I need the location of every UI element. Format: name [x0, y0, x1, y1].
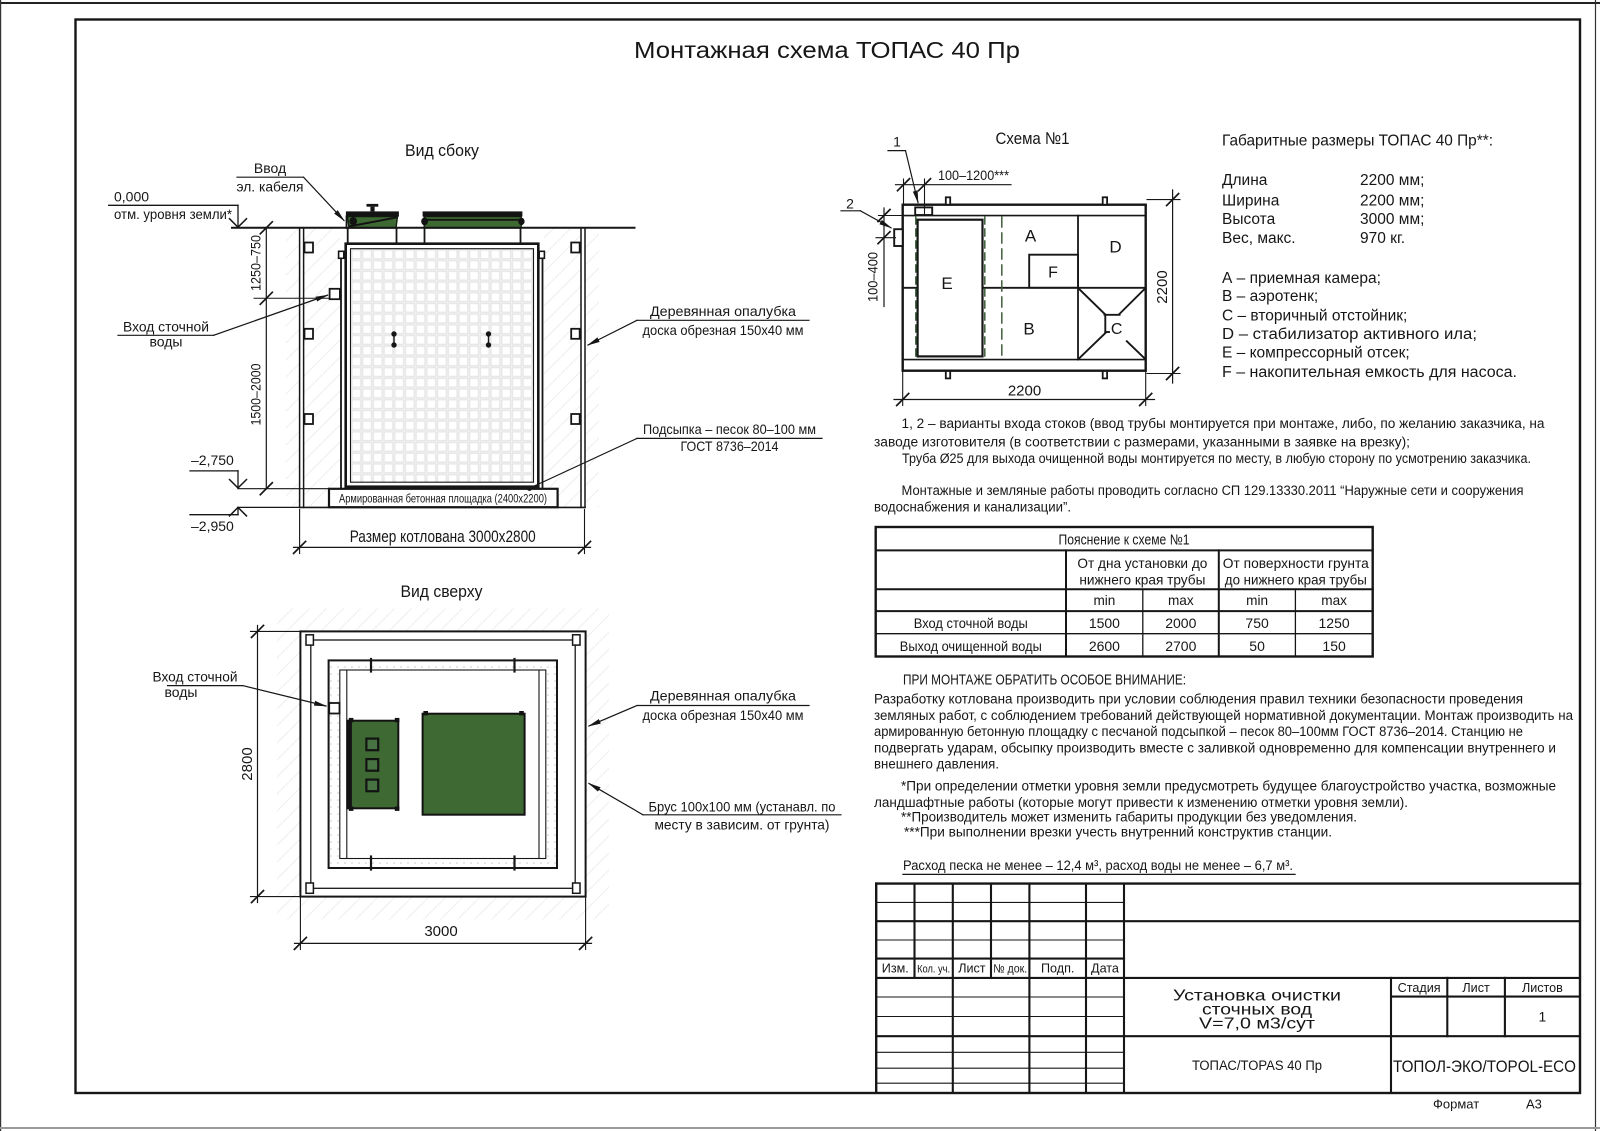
svg-text:доска обрезная 150х40 мм: доска обрезная 150х40 мм	[643, 322, 804, 338]
svg-text:Высота: Высота	[1222, 211, 1276, 228]
svg-text:–2,750: –2,750	[191, 452, 234, 468]
svg-text:C: C	[1111, 321, 1123, 338]
svg-text:От дна установки до: От дна установки до	[1077, 556, 1207, 571]
svg-text:Вход сточной воды: Вход сточной воды	[914, 615, 1028, 631]
svg-text:заводе изготовителя (в соответ: заводе изготовителя (в соответствии с ра…	[874, 435, 1410, 451]
svg-text:750: 750	[1245, 615, 1269, 631]
svg-text:ТОПОЛ-ЭКО/TOPOL-ECO: ТОПОЛ-ЭКО/TOPOL-ECO	[1393, 1057, 1576, 1076]
svg-text:Труба Ø25 для выхода очищенной: Труба Ø25 для выхода очищенной воды монт…	[902, 451, 1531, 467]
svg-text:От поверхности грунта: От поверхности грунта	[1223, 556, 1369, 571]
svg-text:970 кг.: 970 кг.	[1360, 230, 1405, 247]
svg-text:доска обрезная 150х40 мм: доска обрезная 150х40 мм	[643, 707, 804, 723]
svg-text:земляных работ, с соблюдением: земляных работ, с соблюдением требований…	[874, 708, 1573, 724]
svg-text:ПРИ МОНТАЖЕ ОБРАТИТЬ ОСОБОЕ ВН: ПРИ МОНТАЖЕ ОБРАТИТЬ ОСОБОЕ ВНИМАНИЕ:	[903, 673, 1186, 689]
svg-text:max: max	[1321, 593, 1347, 608]
svg-text:Разработку котлована производи: Разработку котлована производить при усл…	[874, 692, 1523, 708]
svg-text:Лист: Лист	[1462, 981, 1490, 995]
svg-text:min: min	[1246, 593, 1268, 608]
svg-text:№ док.: № док.	[993, 962, 1027, 976]
svg-text:2200: 2200	[1008, 382, 1041, 399]
svg-text:армированную бетонную площадку: армированную бетонную площадку с песчано…	[874, 724, 1523, 740]
svg-text:отм. уровня земли*: отм. уровня земли*	[114, 207, 232, 222]
svg-text:ТОПАС/TOPAS 40 Пр: ТОПАС/TOPAS 40 Пр	[1192, 1058, 1322, 1074]
svg-text:–2,950: –2,950	[191, 518, 234, 534]
svg-text:F – накопительная емкость для: F – накопительная емкость для насоса.	[1222, 364, 1517, 381]
svg-text:Расход песка не менее – 12,4 м: Расход песка не менее – 12,4 м³, расход …	[903, 858, 1293, 874]
svg-text:А3: А3	[1526, 1097, 1542, 1112]
svg-text:Монтажные и земляные работы пр: Монтажные и земляные работы проводить со…	[902, 483, 1524, 499]
svg-text:2200: 2200	[1154, 270, 1171, 303]
svg-text:подвергать ударам, обсыпку про: подвергать ударам, обсыпку производить в…	[874, 740, 1556, 756]
svg-text:Формат: Формат	[1433, 1097, 1479, 1112]
svg-text:0,000: 0,000	[114, 189, 149, 205]
svg-text:ГОСТ 8736–2014: ГОСТ 8736–2014	[681, 438, 779, 454]
svg-text:B: B	[1023, 320, 1034, 339]
svg-text:Вес, макс.: Вес, макс.	[1222, 230, 1296, 247]
svg-text:A: A	[1025, 227, 1037, 246]
svg-text:3000: 3000	[424, 923, 457, 940]
svg-text:***При выполнении врезки учест: ***При выполнении врезки учесть внутренн…	[904, 824, 1332, 840]
svg-text:E: E	[941, 274, 952, 293]
svg-text:Схема №1: Схема №1	[996, 129, 1070, 148]
svg-text:до нижнего края трубы: до нижнего края трубы	[1225, 573, 1367, 588]
svg-text:100–400: 100–400	[865, 252, 881, 302]
svg-text:С – вторичный отстойник;: С – вторичный отстойник;	[1222, 308, 1407, 325]
svg-text:2: 2	[846, 195, 854, 211]
svg-text:3000 мм;: 3000 мм;	[1360, 211, 1424, 228]
svg-text:2600: 2600	[1089, 638, 1120, 654]
svg-text:150: 150	[1322, 638, 1346, 654]
svg-text:Вид сбоку: Вид сбоку	[405, 141, 479, 160]
svg-text:Брус 100х100 мм (устанавл. по: Брус 100х100 мм (устанавл. по	[649, 799, 836, 815]
svg-text:Изм.: Изм.	[882, 962, 909, 976]
svg-text:Ширина: Ширина	[1222, 193, 1280, 210]
svg-text:V=7,0 м3/сут: V=7,0 м3/сут	[1199, 1016, 1315, 1033]
svg-text:Вид сверху: Вид сверху	[401, 582, 483, 601]
svg-text:эл. кабеля: эл. кабеля	[237, 179, 304, 195]
svg-text:2800: 2800	[239, 747, 256, 780]
svg-text:Армированная бетонная площадка: Армированная бетонная площадка (2400х220…	[339, 491, 547, 505]
svg-text:Деревянная опалубка: Деревянная опалубка	[650, 688, 796, 704]
svg-text:А – приемная камера;: А – приемная камера;	[1222, 270, 1381, 287]
svg-text:F: F	[1048, 265, 1058, 282]
svg-text:50: 50	[1249, 638, 1265, 654]
svg-text:В – аэротенк;: В – аэротенк;	[1222, 288, 1318, 305]
svg-text:Размер котлована 3000х2800: Размер котлована 3000х2800	[350, 527, 536, 546]
svg-text:1: 1	[893, 134, 901, 150]
svg-text:1250–750: 1250–750	[248, 235, 264, 291]
svg-text:внешнего давления.: внешнего давления.	[874, 757, 999, 773]
svg-text:2000: 2000	[1165, 615, 1196, 631]
svg-text:Длина: Длина	[1222, 172, 1268, 189]
svg-text:D: D	[1109, 238, 1121, 257]
svg-text:Стадия: Стадия	[1398, 981, 1441, 995]
svg-text:Е – компрессорный отсек;: Е – компрессорный отсек;	[1222, 345, 1410, 362]
svg-text:Ввод: Ввод	[254, 160, 286, 176]
svg-text:2200 мм;: 2200 мм;	[1360, 172, 1424, 189]
svg-text:воды: воды	[165, 684, 198, 700]
svg-text:Деревянная опалубка: Деревянная опалубка	[650, 303, 796, 319]
svg-text:месту в зависим. от грунта): месту в зависим. от грунта)	[655, 817, 830, 833]
svg-text:Монтажная схема ТОПАС 40 Пр: Монтажная схема ТОПАС 40 Пр	[634, 37, 1020, 63]
svg-text:Габаритные размеры ТОПАС 40 Пр: Габаритные размеры ТОПАС 40 Пр**:	[1222, 133, 1493, 150]
svg-text:Подсыпка – песок 80–100 мм: Подсыпка – песок 80–100 мм	[643, 421, 816, 437]
svg-text:2700: 2700	[1165, 638, 1196, 654]
svg-text:Лист: Лист	[958, 962, 986, 976]
svg-text:Пояснение к схеме №1: Пояснение к схеме №1	[1059, 533, 1190, 549]
svg-text:1500–2000: 1500–2000	[248, 363, 264, 425]
svg-text:*При определении отметки уровн: *При определении отметки уровня земли пр…	[901, 779, 1556, 795]
svg-text:D – стабилизатор активного ила: D – стабилизатор активного ила;	[1222, 326, 1477, 343]
svg-text:Дата: Дата	[1091, 962, 1119, 976]
svg-text:водоснабжения и канализации”.: водоснабжения и канализации”.	[874, 500, 1071, 516]
svg-text:min: min	[1093, 593, 1115, 608]
svg-text:Листов: Листов	[1522, 981, 1563, 995]
svg-text:Подп.: Подп.	[1041, 962, 1074, 976]
svg-text:Вход сточной: Вход сточной	[123, 319, 209, 335]
svg-text:нижнего края трубы: нижнего края трубы	[1079, 573, 1205, 588]
svg-text:1: 1	[1539, 1009, 1547, 1025]
svg-text:Вход сточной: Вход сточной	[153, 669, 238, 685]
svg-text:1, 2 – варианты входа стоков: 1, 2 – варианты входа стоков (ввод трубы…	[902, 416, 1545, 432]
svg-text:1250: 1250	[1319, 615, 1350, 631]
svg-text:2200 мм;: 2200 мм;	[1360, 193, 1424, 210]
svg-text:1500: 1500	[1089, 615, 1120, 631]
svg-text:Выход очищенной воды: Выход очищенной воды	[900, 638, 1042, 654]
svg-text:max: max	[1168, 593, 1194, 608]
svg-text:Кол. уч.: Кол. уч.	[917, 964, 950, 976]
svg-text:**Производитель может изменить: **Производитель может изменить габариты …	[901, 809, 1357, 825]
svg-text:100–1200***: 100–1200***	[938, 167, 1009, 183]
